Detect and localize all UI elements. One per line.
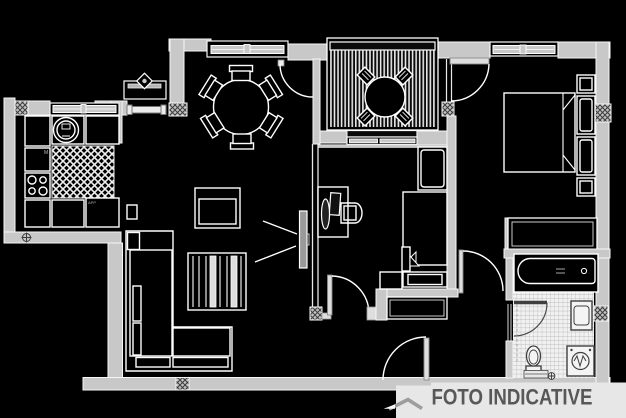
svg-text:FOTO INDICATIVE: FOTO INDICATIVE: [432, 385, 593, 410]
svg-text:M: M: [44, 150, 48, 156]
svg-text:APP: APP: [88, 200, 96, 205]
